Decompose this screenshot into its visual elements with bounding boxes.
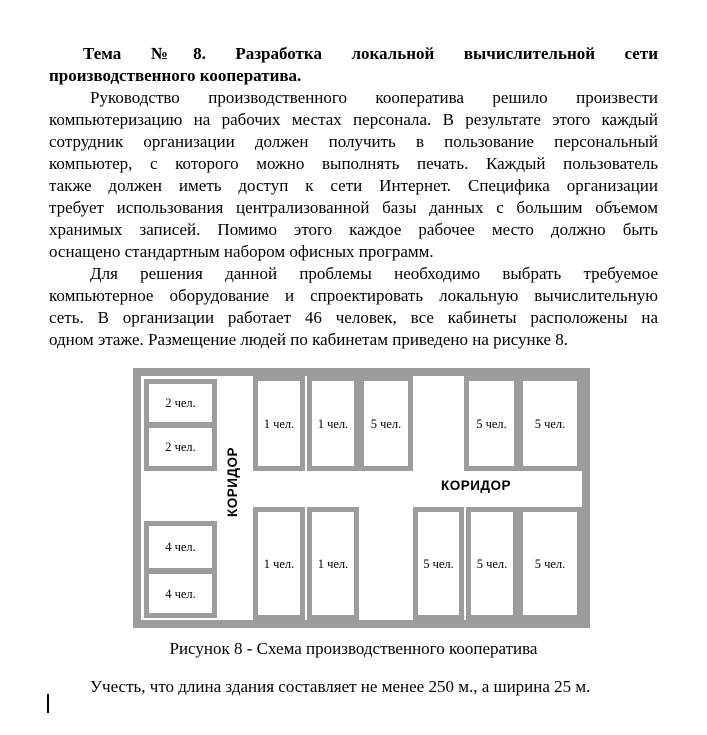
room-bottom-1: 1 чел.	[253, 507, 305, 620]
paragraph-line: компьютер, с которого можно выполнять пе…	[49, 153, 658, 175]
room-bottom-5: 5 чел.	[518, 507, 582, 620]
building-outline: 2 чел. 2 чел. 4 чел. 4 чел. 1 чел. 1 чел…	[133, 368, 590, 628]
room-top-2: 1 чел.	[307, 376, 359, 471]
room-left-bottom-1: 4 чел.	[144, 521, 217, 573]
paragraph-line: Руководство производственного кооператив…	[49, 87, 658, 109]
note-text: Учесть, что длина здания составляет не м…	[49, 676, 658, 698]
text-cursor[interactable]	[47, 694, 49, 713]
room-left-bottom-2: 4 чел.	[144, 569, 217, 618]
floor-plan: 2 чел. 2 чел. 4 чел. 4 чел. 1 чел. 1 чел…	[133, 368, 658, 628]
title-line: Тема №8. Разработка локальной вычислител…	[49, 43, 658, 65]
room-top-3: 5 чел.	[359, 376, 413, 471]
room-bottom-4: 5 чел.	[466, 507, 518, 620]
paragraph-line: также должен иметь доступ к сети Интерне…	[49, 175, 658, 197]
paragraph-line: требует использования централизованной б…	[49, 197, 658, 219]
document-page[interactable]: Тема №8. Разработка локальной вычислител…	[0, 0, 707, 698]
paragraph-line: компьютеризацию на рабочих местах персон…	[49, 109, 658, 131]
paragraph-line: сеть. В организации работает 46 человек,…	[49, 307, 658, 329]
paragraph-line: сотрудник организации должен получить в …	[49, 131, 658, 153]
room-bottom-3: 5 чел.	[413, 507, 464, 620]
paragraph-line: компьютерное оборудование и спроектирова…	[49, 285, 658, 307]
room-top-4: 5 чел.	[464, 376, 519, 471]
paragraph-line: хранимых записей. Помимо этого каждое ра…	[49, 219, 658, 241]
corridor-vertical-label: КОРИДОР	[218, 443, 248, 521]
paragraph-line: одном этаже. Размещение людей по кабинет…	[49, 329, 658, 351]
title-line: производственного кооператива.	[49, 65, 658, 87]
figure-caption: Рисунок 8 - Схема производственного кооп…	[49, 638, 658, 660]
corridor-horizontal-label: КОРИДОР	[421, 477, 531, 495]
room-bottom-2: 1 чел.	[307, 507, 359, 620]
room-left-top-1: 2 чел.	[144, 379, 217, 427]
room-top-5: 5 чел.	[518, 376, 582, 471]
paragraph-line: оснащено стандартным набором офисных про…	[49, 241, 658, 263]
paragraph-line: Для решения данной проблемы необходимо в…	[49, 263, 658, 285]
room-left-top-2: 2 чел.	[144, 423, 217, 471]
room-top-1: 1 чел.	[253, 376, 305, 471]
